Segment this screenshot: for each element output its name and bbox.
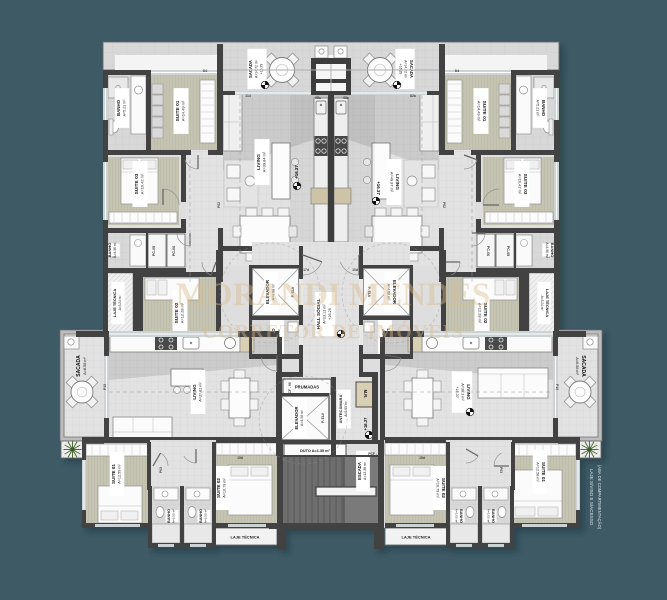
svg-text:A=38.3 m²: A=38.3 m² [460,383,464,401]
svg-text:P. ELV: P. ELV [321,412,325,423]
svg-text:A=10.79 m²: A=10.79 m² [223,477,227,497]
svg-text:98a: 98a [343,96,349,100]
svg-text:M.R.: M.R. [363,390,368,399]
svg-text:+16.37: +16.37 [376,181,381,195]
svg-text:A=39.84 m²: A=39.84 m² [262,151,267,172]
svg-text:98a: 98a [315,96,321,100]
svg-text:LAJE TÉCNICA: LAJE TÉCNICA [401,535,430,540]
svg-text:SACADA: SACADA [580,355,586,377]
svg-text:A=10.79 m²: A=10.79 m² [436,478,440,498]
svg-text:LAJE TÉCNICA: LAJE TÉCNICA [230,535,259,540]
svg-text:P03: P03 [499,467,503,473]
svg-text:SUITE 01: SUITE 01 [541,462,546,482]
svg-text:A=8.56 m²: A=8.56 m² [575,357,579,375]
svg-text:A=3.00 m²: A=3.00 m² [486,509,490,523]
svg-text:A=5.21 m²: A=5.21 m² [122,99,126,116]
svg-text:17d: 17d [303,268,309,272]
svg-text:BANHO: BANHO [167,509,171,523]
svg-text:A=14.49 m²: A=14.49 m² [476,101,481,122]
svg-text:A=4.96 m²: A=4.96 m² [545,242,549,258]
svg-text:A=5.00 m²: A=5.00 m² [344,401,348,417]
svg-text:LAJE S/VISO E S/ACESSO: LAJE S/VISO E S/ACESSO [589,469,594,526]
svg-text:SACADA: SACADA [409,60,414,78]
svg-text:10f: 10f [544,269,550,273]
svg-text:A=37.82 m²: A=37.82 m² [199,381,203,401]
svg-text:SUITE 02: SUITE 02 [441,478,446,498]
svg-text:A=3.00 m²: A=3.00 m² [454,509,458,523]
svg-text:D4: D4 [203,69,207,73]
svg-text:LAJE TÉCNICA: LAJE TÉCNICA [112,289,117,318]
svg-text:PC-05: PC-05 [152,246,156,256]
svg-text:A=49.97 m²: A=49.97 m² [389,172,394,193]
svg-text:CORRETOR DE IMÓVEIS: CORRETOR DE IMÓVEIS [203,319,464,343]
svg-text:A=14.72 m²: A=14.72 m² [254,59,258,78]
svg-text:SUITE 01: SUITE 01 [111,464,116,484]
svg-text:A=10.42 m²: A=10.42 m² [140,173,145,194]
svg-text:A=14.49 m²: A=14.49 m² [181,100,186,121]
svg-text:A=4.96 m²: A=4.96 m² [113,242,117,258]
svg-text:82a: 82a [410,94,416,98]
svg-text:A=5.21 m²: A=5.21 m² [536,100,540,117]
svg-text:A=8.56 m²: A=8.56 m² [83,356,87,374]
svg-text:P04: P04 [98,331,104,335]
svg-text:114: 114 [245,94,251,98]
svg-text:+16.29: +16.29 [398,64,402,75]
svg-text:15d: 15d [419,456,425,460]
svg-text:A=12.58 m²: A=12.58 m² [536,462,540,482]
svg-text:PRUMADAS: PRUMADAS [295,385,319,390]
svg-text:P02: P02 [217,202,221,208]
svg-text:SACADA: SACADA [248,60,253,78]
svg-text:P13: P13 [555,384,559,390]
svg-text:P04: P04 [557,331,563,335]
svg-text:BANHO: BANHO [116,99,121,116]
svg-text:+16.29: +16.29 [260,64,264,75]
svg-text:PCF - 90: PCF - 90 [368,452,382,456]
svg-text:PCF - 90: PCF - 90 [288,382,292,396]
svg-text:SACADA: SACADA [76,355,82,377]
svg-text:BANHO: BANHO [491,509,495,523]
svg-text:BANHO: BANHO [541,100,546,117]
svg-text:D4: D4 [455,69,459,73]
svg-text:15d: 15d [237,456,243,460]
svg-text:P13: P13 [103,384,107,390]
svg-text:P03: P03 [159,467,163,473]
svg-text:10d: 10d [352,268,358,272]
svg-text:BANHO: BANHO [459,509,463,523]
svg-text:+16.37: +16.37 [363,417,368,431]
svg-text:SUITE 02: SUITE 02 [216,478,221,498]
svg-text:ELEVADOR: ELEVADOR [294,407,299,430]
svg-text:DUTO A=1.35 m²: DUTO A=1.35 m² [300,449,330,453]
svg-text:ANTECÂMARA: ANTECÂMARA [338,395,343,424]
svg-text:A=3.24 m²: A=3.24 m² [540,296,544,311]
svg-text:P02: P02 [442,202,446,208]
svg-text:A=10.42 m²: A=10.42 m² [517,174,522,195]
svg-text:BANHO: BANHO [199,509,203,523]
svg-text:PC-06: PC-06 [172,246,176,256]
svg-text:A=3.00 m²: A=3.00 m² [204,509,208,523]
svg-text:10f: 10f [114,269,120,273]
svg-text:ESCADA: ESCADA [357,462,362,480]
svg-text:A=12.38 m²: A=12.38 m² [363,461,367,480]
svg-text:A=4.08 m²: A=4.08 m² [300,409,304,426]
svg-text:A=3.00 m²: A=3.00 m² [172,509,176,523]
svg-text:PC-06: PC-06 [486,246,490,256]
svg-text:LAJE TÉCNICA: LAJE TÉCNICA [545,289,550,318]
svg-text:A=14.72 m²: A=14.72 m² [404,60,408,79]
svg-text:A=12.59 m²: A=12.59 m² [118,463,122,483]
svg-text:A=3.24 m²: A=3.24 m² [118,296,122,311]
svg-text:(ABA DE COMPARTIMENTAÇÃO): (ABA DE COMPARTIMENTAÇÃO) [597,465,602,530]
svg-text:MORANDI MENDES: MORANDI MENDES [176,277,490,313]
svg-text:PC-05: PC-05 [506,246,510,256]
